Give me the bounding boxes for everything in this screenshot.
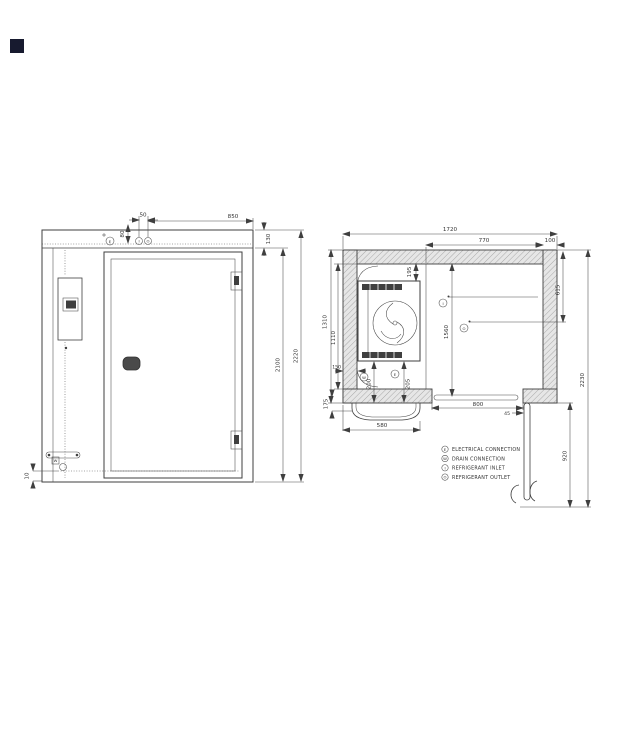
electrical-connection-symbol-front: E [106, 237, 114, 245]
dim-50-label: 50 [139, 213, 147, 219]
legend-item: W DRAIN CONNECTION [442, 455, 505, 462]
drain-tray [352, 403, 420, 420]
symbol-letter: I [442, 301, 443, 306]
cold-room-door [104, 252, 242, 478]
legend: E ELECTRICAL CONNECTION W DRAIN CONNECTI… [442, 446, 521, 481]
dim-45-label: 45 [504, 411, 510, 417]
legend-symbol: O [444, 475, 447, 480]
dim-1110-label: 1110 [331, 330, 337, 345]
legend-item: E ELECTRICAL CONNECTION [442, 446, 521, 453]
door-handle [123, 357, 140, 370]
technical-drawing-page: E I O W [0, 0, 637, 750]
door-hinge-top [231, 272, 242, 290]
dim-1720-label: 1720 [443, 227, 458, 233]
legend-label: REFRIGERANT OUTLET [452, 475, 510, 481]
evaporator-unit [358, 281, 420, 361]
legend-symbol: E [444, 447, 447, 452]
dim-100-label: 100 [545, 238, 556, 244]
drawing-svg: E I O W [0, 0, 637, 750]
door-hinge-bottom [231, 431, 242, 449]
legend-label: DRAIN CONNECTION [452, 456, 505, 462]
plan-view: W E I O 1720 [323, 227, 592, 507]
dim-1310-label: 1310 [323, 314, 329, 329]
dim-2230-label: 2230 [580, 372, 586, 387]
dim-10-label: 10 [25, 472, 31, 480]
symbol-letter: O [147, 239, 150, 244]
dim-800-label: 800 [473, 402, 484, 408]
refrigerant-inlet-symbol-front: I [136, 238, 143, 245]
legend-symbol: I [444, 465, 445, 470]
electrical-connection-symbol-plan: E [391, 370, 399, 378]
air-guide-corner-top [357, 266, 378, 286]
dim-2100-label: 2100 [276, 357, 282, 372]
door-leaf-end [530, 481, 537, 501]
bumper-rail [46, 452, 80, 458]
dim-850-label: 850 [228, 214, 239, 220]
drain-connection-symbol-front: W [52, 457, 67, 471]
open-door-leaf [524, 403, 530, 500]
dim-195-label: 195 [407, 266, 413, 277]
dim-2220-label: 2220 [294, 348, 300, 363]
dim-150-label: 150 [332, 365, 341, 371]
dim-615-label: 615 [556, 284, 562, 295]
symbol-letter: E [109, 239, 112, 244]
dim-920-label: 920 [563, 450, 569, 461]
legend-item: I REFRIGERANT INLET [442, 465, 505, 472]
legend-label: ELECTRICAL CONNECTION [452, 447, 520, 453]
dim-205-label: 205 [406, 378, 412, 389]
dim-175-label: 175 [324, 398, 330, 409]
degree-mark-icon [103, 234, 105, 236]
dim-130-label: 130 [266, 233, 272, 244]
wall-bottom-right [523, 389, 557, 403]
legend-symbol: W [443, 456, 447, 461]
wall-left [343, 250, 357, 403]
symbol-letter: O [463, 326, 466, 331]
symbol-letter: I [138, 239, 139, 244]
symbol-letter: W [54, 458, 58, 463]
refrigerant-inlet-symbol-plan: I [439, 296, 538, 308]
dim-580-label: 580 [377, 423, 388, 429]
front-elevation-view: E I O W [25, 213, 305, 489]
control-panel [58, 278, 82, 349]
wall-top [343, 250, 557, 264]
refrigerant-outlet-symbol-front: O [145, 238, 152, 245]
door-handle-plan [511, 485, 519, 503]
wall-bottom-left [343, 389, 432, 403]
evaporator-fan [373, 301, 417, 345]
dim-200-label: 200 [367, 378, 373, 389]
dim-1560-label: 1560 [444, 324, 450, 339]
wall-right [543, 250, 557, 403]
dim-770-label: 770 [479, 238, 490, 244]
symbol-letter: E [394, 372, 397, 377]
dim-80-label: 80 [120, 230, 126, 238]
front-dimensions: 50 850 80 130 2100 2220 10 [25, 213, 305, 489]
cold-room-body [42, 230, 253, 482]
legend-item: O REFRIGERANT OUTLET [442, 474, 511, 481]
legend-label: REFRIGERANT INLET [452, 466, 505, 472]
door-threshold [434, 395, 518, 400]
